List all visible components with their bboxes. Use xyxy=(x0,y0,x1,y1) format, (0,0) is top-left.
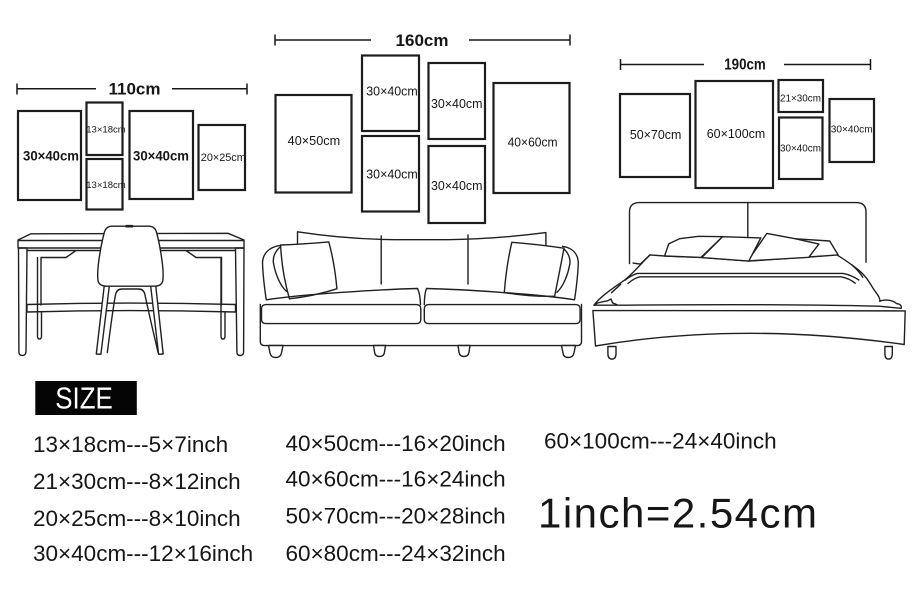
svg-text:20×25cm---8×10inch: 20×25cm---8×10inch xyxy=(33,506,241,531)
svg-text:40×60cm---16×24inch: 40×60cm---16×24inch xyxy=(286,467,506,492)
svg-text:13×18cm: 13×18cm xyxy=(86,125,126,135)
svg-text:40×60cm: 40×60cm xyxy=(508,135,558,150)
svg-text:60×100cm: 60×100cm xyxy=(707,126,766,141)
svg-text:13×18cm---5×7inch: 13×18cm---5×7inch xyxy=(33,432,228,457)
svg-text:50×70cm---20×28inch: 50×70cm---20×28inch xyxy=(286,504,506,529)
svg-text:30×40cm: 30×40cm xyxy=(366,167,418,182)
svg-text:30×40cm: 30×40cm xyxy=(133,148,189,164)
svg-text:SIZE: SIZE xyxy=(55,380,113,415)
svg-text:40×50cm: 40×50cm xyxy=(288,133,341,148)
svg-text:21×30cm---8×12inch: 21×30cm---8×12inch xyxy=(33,469,241,494)
svg-text:110cm: 110cm xyxy=(109,80,161,99)
svg-text:1inch=2.54cm: 1inch=2.54cm xyxy=(538,490,817,537)
svg-text:30×40cm: 30×40cm xyxy=(366,84,418,99)
svg-text:30×40cm---12×16inch: 30×40cm---12×16inch xyxy=(33,541,253,566)
svg-text:30×40cm: 30×40cm xyxy=(780,143,821,155)
svg-text:13×18cm: 13×18cm xyxy=(86,180,126,190)
svg-text:160cm: 160cm xyxy=(396,31,449,50)
svg-text:20×25cm: 20×25cm xyxy=(201,152,246,164)
svg-text:60×100cm---24×40inch: 60×100cm---24×40inch xyxy=(544,429,777,454)
svg-text:21×30cm: 21×30cm xyxy=(780,93,821,105)
svg-text:190cm: 190cm xyxy=(724,57,766,74)
svg-text:50×70cm: 50×70cm xyxy=(630,127,682,142)
svg-text:30×40cm: 30×40cm xyxy=(831,124,873,136)
svg-text:30×40cm: 30×40cm xyxy=(431,96,483,111)
svg-text:30×40cm: 30×40cm xyxy=(23,148,79,164)
svg-text:40×50cm---16×20inch: 40×50cm---16×20inch xyxy=(286,431,506,456)
svg-text:30×40cm: 30×40cm xyxy=(431,178,483,193)
svg-text:60×80cm---24×32inch: 60×80cm---24×32inch xyxy=(286,541,506,566)
